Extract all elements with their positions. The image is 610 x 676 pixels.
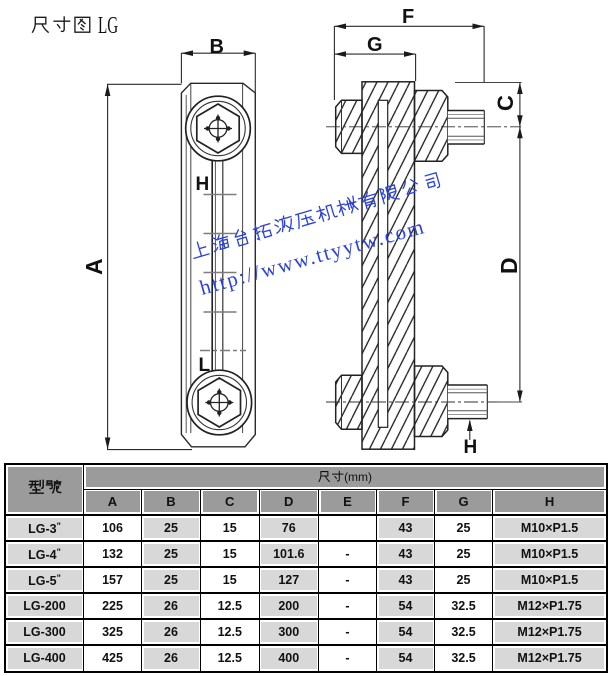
svg-text:L: L: [199, 355, 211, 376]
svg-text:D: D: [496, 257, 522, 274]
svg-text:H: H: [196, 174, 210, 195]
svg-text:A: A: [81, 258, 107, 275]
svg-text:H: H: [464, 437, 478, 458]
svg-text:G: G: [367, 34, 383, 56]
svg-text:C: C: [493, 95, 518, 111]
svg-text:B: B: [210, 36, 224, 58]
svg-text:LG: LG: [98, 13, 118, 39]
svg-text:F: F: [402, 6, 414, 28]
